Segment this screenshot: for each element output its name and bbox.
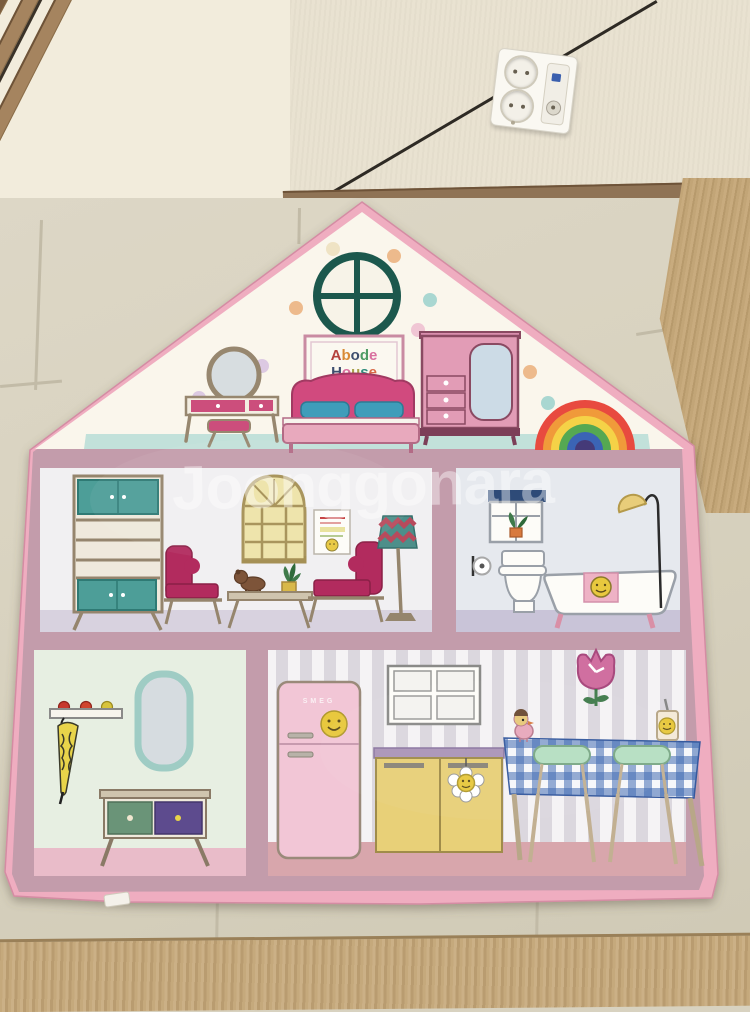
wardrobe	[420, 332, 520, 445]
bed	[283, 374, 419, 454]
hallway-floor	[34, 848, 246, 876]
bed-pillow	[301, 402, 349, 418]
polka-dot	[423, 293, 437, 307]
hall-mirror	[138, 674, 190, 768]
fridge-logo: SMEG	[303, 698, 336, 705]
vanity-stool	[208, 420, 250, 432]
photo-of-playmat-on-floor: { "photo": { "watermark_text": "Joonggon…	[0, 0, 750, 1001]
toilet-paper-holder	[473, 556, 491, 576]
watermark: Joonggonara	[171, 447, 554, 525]
bed-pillow	[355, 402, 403, 418]
polka-dot	[326, 242, 340, 256]
fabric-sheen	[320, 680, 680, 820]
polka-dot	[387, 249, 401, 263]
polka-dot	[523, 365, 537, 379]
polka-dot	[289, 301, 303, 315]
sign-line1: Abode	[331, 347, 378, 364]
attic-round-window	[317, 256, 397, 336]
wardrobe-mirror-door	[470, 344, 512, 420]
polka-dot	[541, 396, 555, 410]
